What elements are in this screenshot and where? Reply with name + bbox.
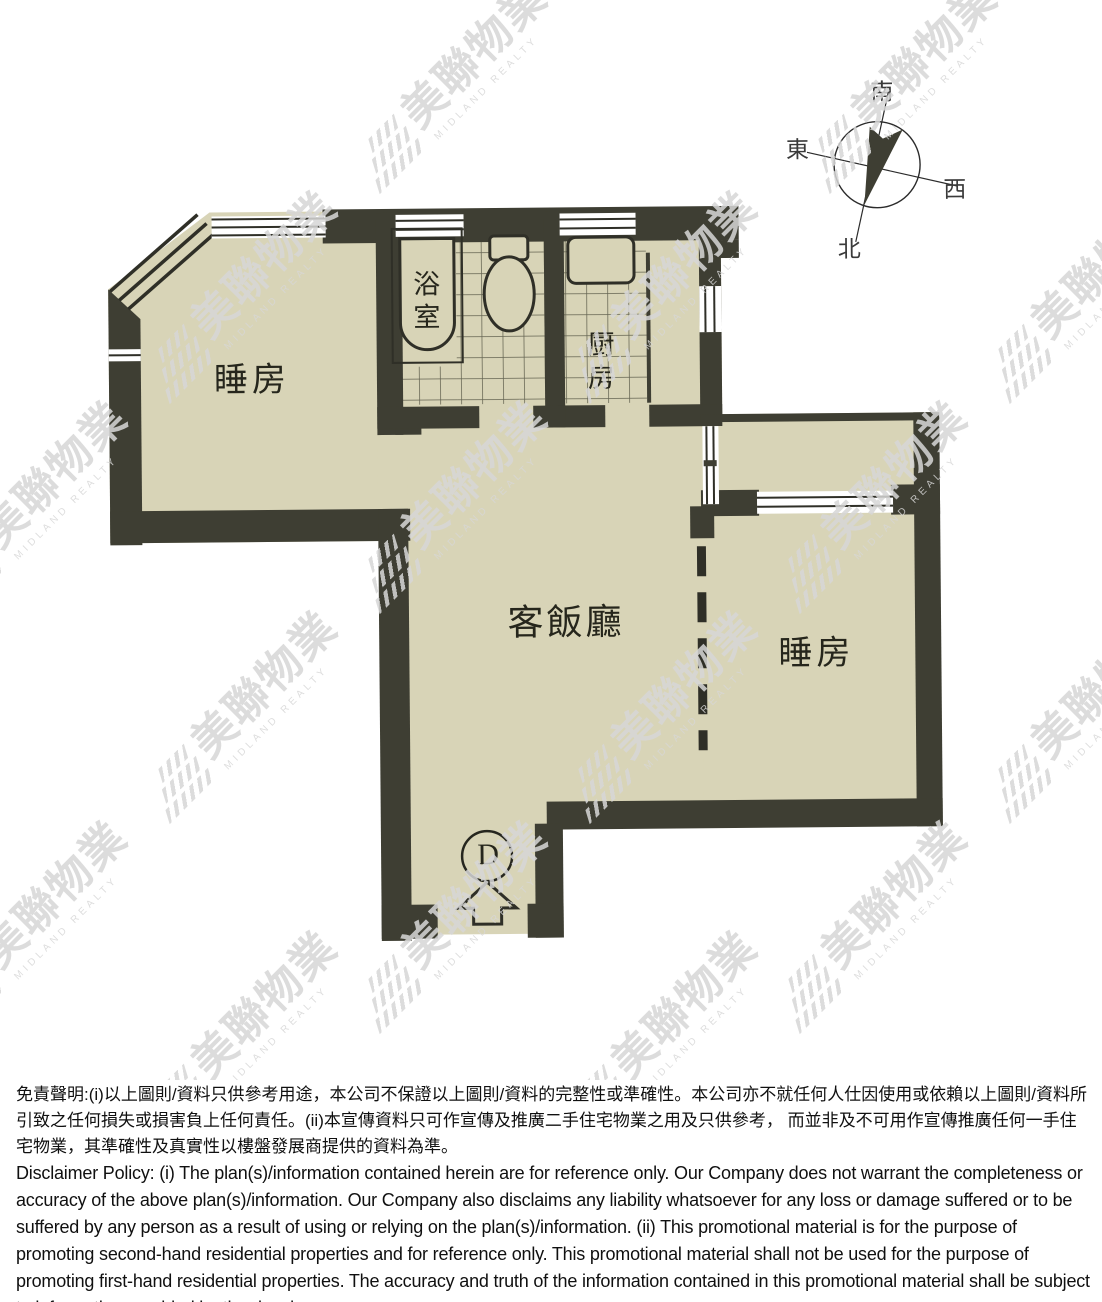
label-bathroom: 浴室 (408, 254, 445, 350)
compass-label-north: 北 (838, 230, 861, 264)
label-unit-d: D (471, 838, 505, 872)
floor-plan-canvas (0, 0, 1102, 1084)
compass-label-west: 西 (943, 170, 966, 204)
toilet (484, 236, 535, 331)
page: 睡房 浴室 厨房 客飯廳 睡房 D 南 東 西 北 美聯物業MIDLAND RE… (0, 0, 1102, 1302)
disclaimer-english: Disclaimer Policy: (i) The plan(s)/infor… (16, 1160, 1090, 1302)
compass (806, 91, 957, 242)
floor-plan: 睡房 浴室 厨房 客飯廳 睡房 D 南 東 西 北 (0, 0, 1102, 1084)
label-bedroom-right: 睡房 (756, 625, 876, 675)
compass-label-east: 東 (786, 130, 809, 164)
kitchen-sink (568, 237, 634, 284)
label-bedroom-left: 睡房 (192, 352, 312, 402)
label-kitchen: 厨房 (582, 313, 619, 413)
compass-needle (864, 126, 904, 204)
disclaimer-chinese: 免責聲明:(i)以上圖則/資料只供參考用途，本公司不保證以上圖則/資料的完整性或… (16, 1082, 1090, 1160)
disclaimer: 免責聲明:(i)以上圖則/資料只供參考用途，本公司不保證以上圖則/資料的完整性或… (16, 1082, 1090, 1302)
compass-label-south: 南 (870, 73, 893, 107)
label-living-dining: 客飯廳 (471, 593, 661, 647)
